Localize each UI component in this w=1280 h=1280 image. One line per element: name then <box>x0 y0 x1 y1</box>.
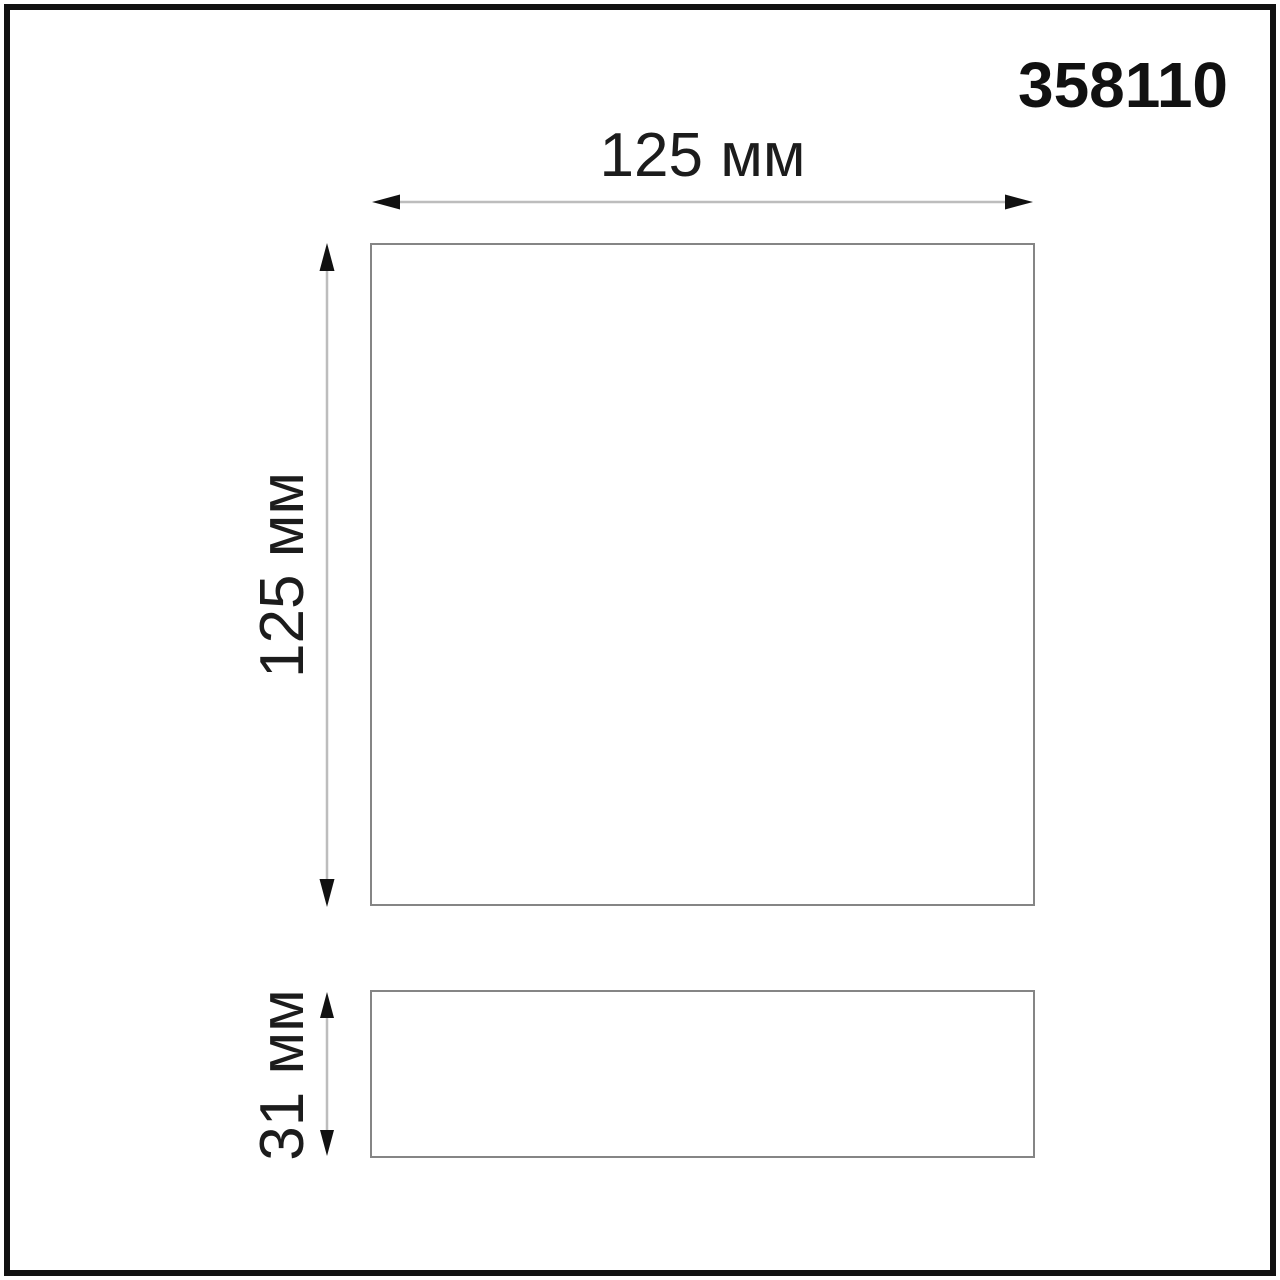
width-dimension-arrow <box>370 187 1035 217</box>
down-arrowhead-icon <box>320 1130 334 1156</box>
height-dimension-label: 125 мм <box>248 375 318 775</box>
front-view-outline <box>370 243 1035 906</box>
product-code: 358110 <box>1018 48 1228 122</box>
dimension-diagram: 358110 125 мм 125 мм 31 мм <box>0 0 1280 1280</box>
depth-dimension-label: 31 мм <box>248 925 318 1225</box>
side-view-outline <box>370 990 1035 1158</box>
up-arrowhead-icon <box>320 992 334 1018</box>
right-arrowhead-icon <box>1005 195 1033 210</box>
left-arrowhead-icon <box>372 195 400 210</box>
width-dimension-label: 125 мм <box>370 124 1035 188</box>
down-arrowhead-icon <box>320 879 335 907</box>
up-arrowhead-icon <box>320 243 335 271</box>
